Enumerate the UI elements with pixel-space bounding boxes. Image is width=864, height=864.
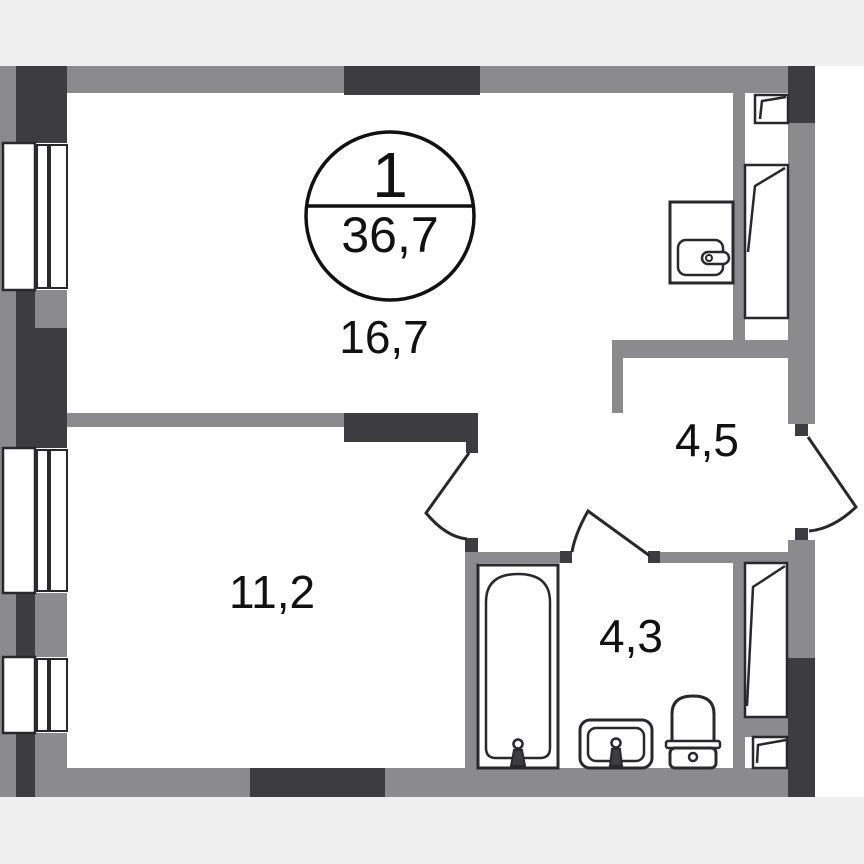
window-icon — [3, 448, 67, 593]
room-label-bathroom: 4,3 — [599, 610, 663, 662]
vent-window-icon — [745, 563, 787, 717]
wall-bathroom-top-right — [660, 552, 788, 563]
wall-left-pier-4-outer — [16, 733, 35, 797]
wall-right-lower-dark — [788, 658, 815, 797]
floorplan-canvas: 1 36,7 16,7 11,2 4,5 4,3 — [0, 0, 864, 864]
wall-shaft-band — [745, 717, 788, 737]
wall-right-upper — [788, 123, 815, 424]
vent-window-icon — [753, 737, 787, 768]
wall-left-pier-2a-inner — [35, 290, 67, 328]
kitchen-sink-icon — [670, 202, 733, 283]
door-jamb-bedroom — [466, 440, 478, 453]
door-jamb-bath-right — [648, 551, 660, 563]
window-icon — [3, 657, 67, 733]
bathtub-icon — [478, 565, 558, 768]
door-jamb-bath-left — [560, 551, 572, 563]
wall-room-divider-dark — [344, 413, 478, 442]
wall-hallway-horizontal — [612, 340, 788, 358]
page-margin-top — [0, 0, 864, 66]
bathtub-faucet — [511, 740, 525, 767]
wall-bottom-right — [385, 768, 788, 797]
page-margin-bottom — [0, 797, 864, 864]
wall-left-pier-2a-outer — [16, 290, 35, 328]
vent-window-icon — [755, 95, 788, 123]
wall-corner-top-right — [788, 66, 815, 123]
window-icon — [3, 143, 67, 290]
wall-shaft-bottom — [733, 563, 745, 768]
wall-top-right — [480, 66, 788, 93]
area-legend: 1 36,7 — [306, 132, 474, 300]
room-label-bedroom: 11,2 — [229, 566, 315, 618]
vent-window-icon — [745, 165, 788, 318]
wall-room-divider-gray — [67, 413, 344, 427]
room-label-living: 16,7 — [339, 311, 429, 363]
washbasin-icon — [580, 720, 652, 768]
door-jamb-bedroom-bath-corner — [465, 538, 478, 552]
wall-left-pier-2b — [16, 328, 67, 448]
door-jamb-entrance-bottom — [795, 528, 808, 540]
room-label-hallway: 4,5 — [675, 414, 739, 466]
wall-top-dark-segment — [344, 66, 480, 95]
wall-hallway-vertical — [612, 358, 623, 413]
wall-bottom-dark-segment — [250, 768, 385, 797]
wall-shaft-top — [733, 93, 745, 340]
wall-right-middle — [788, 540, 815, 658]
legend-total-area: 36,7 — [341, 207, 438, 263]
wall-bottom-left — [35, 768, 250, 797]
wall-bathroom-top-left — [478, 552, 560, 563]
door-jamb-entrance-top — [795, 424, 808, 436]
wall-left-pier-1 — [16, 66, 67, 143]
washbasin-faucet — [610, 739, 622, 767]
wall-bedroom-bathroom — [465, 552, 478, 768]
wall-left-pier-4-inner — [35, 733, 67, 768]
wall-left-pier-3-outer — [16, 593, 35, 657]
legend-rooms-count: 1 — [372, 139, 408, 211]
floorplan-drawing: 1 36,7 16,7 11,2 4,5 4,3 — [0, 0, 864, 864]
wall-left-pier-3-inner — [35, 593, 67, 657]
